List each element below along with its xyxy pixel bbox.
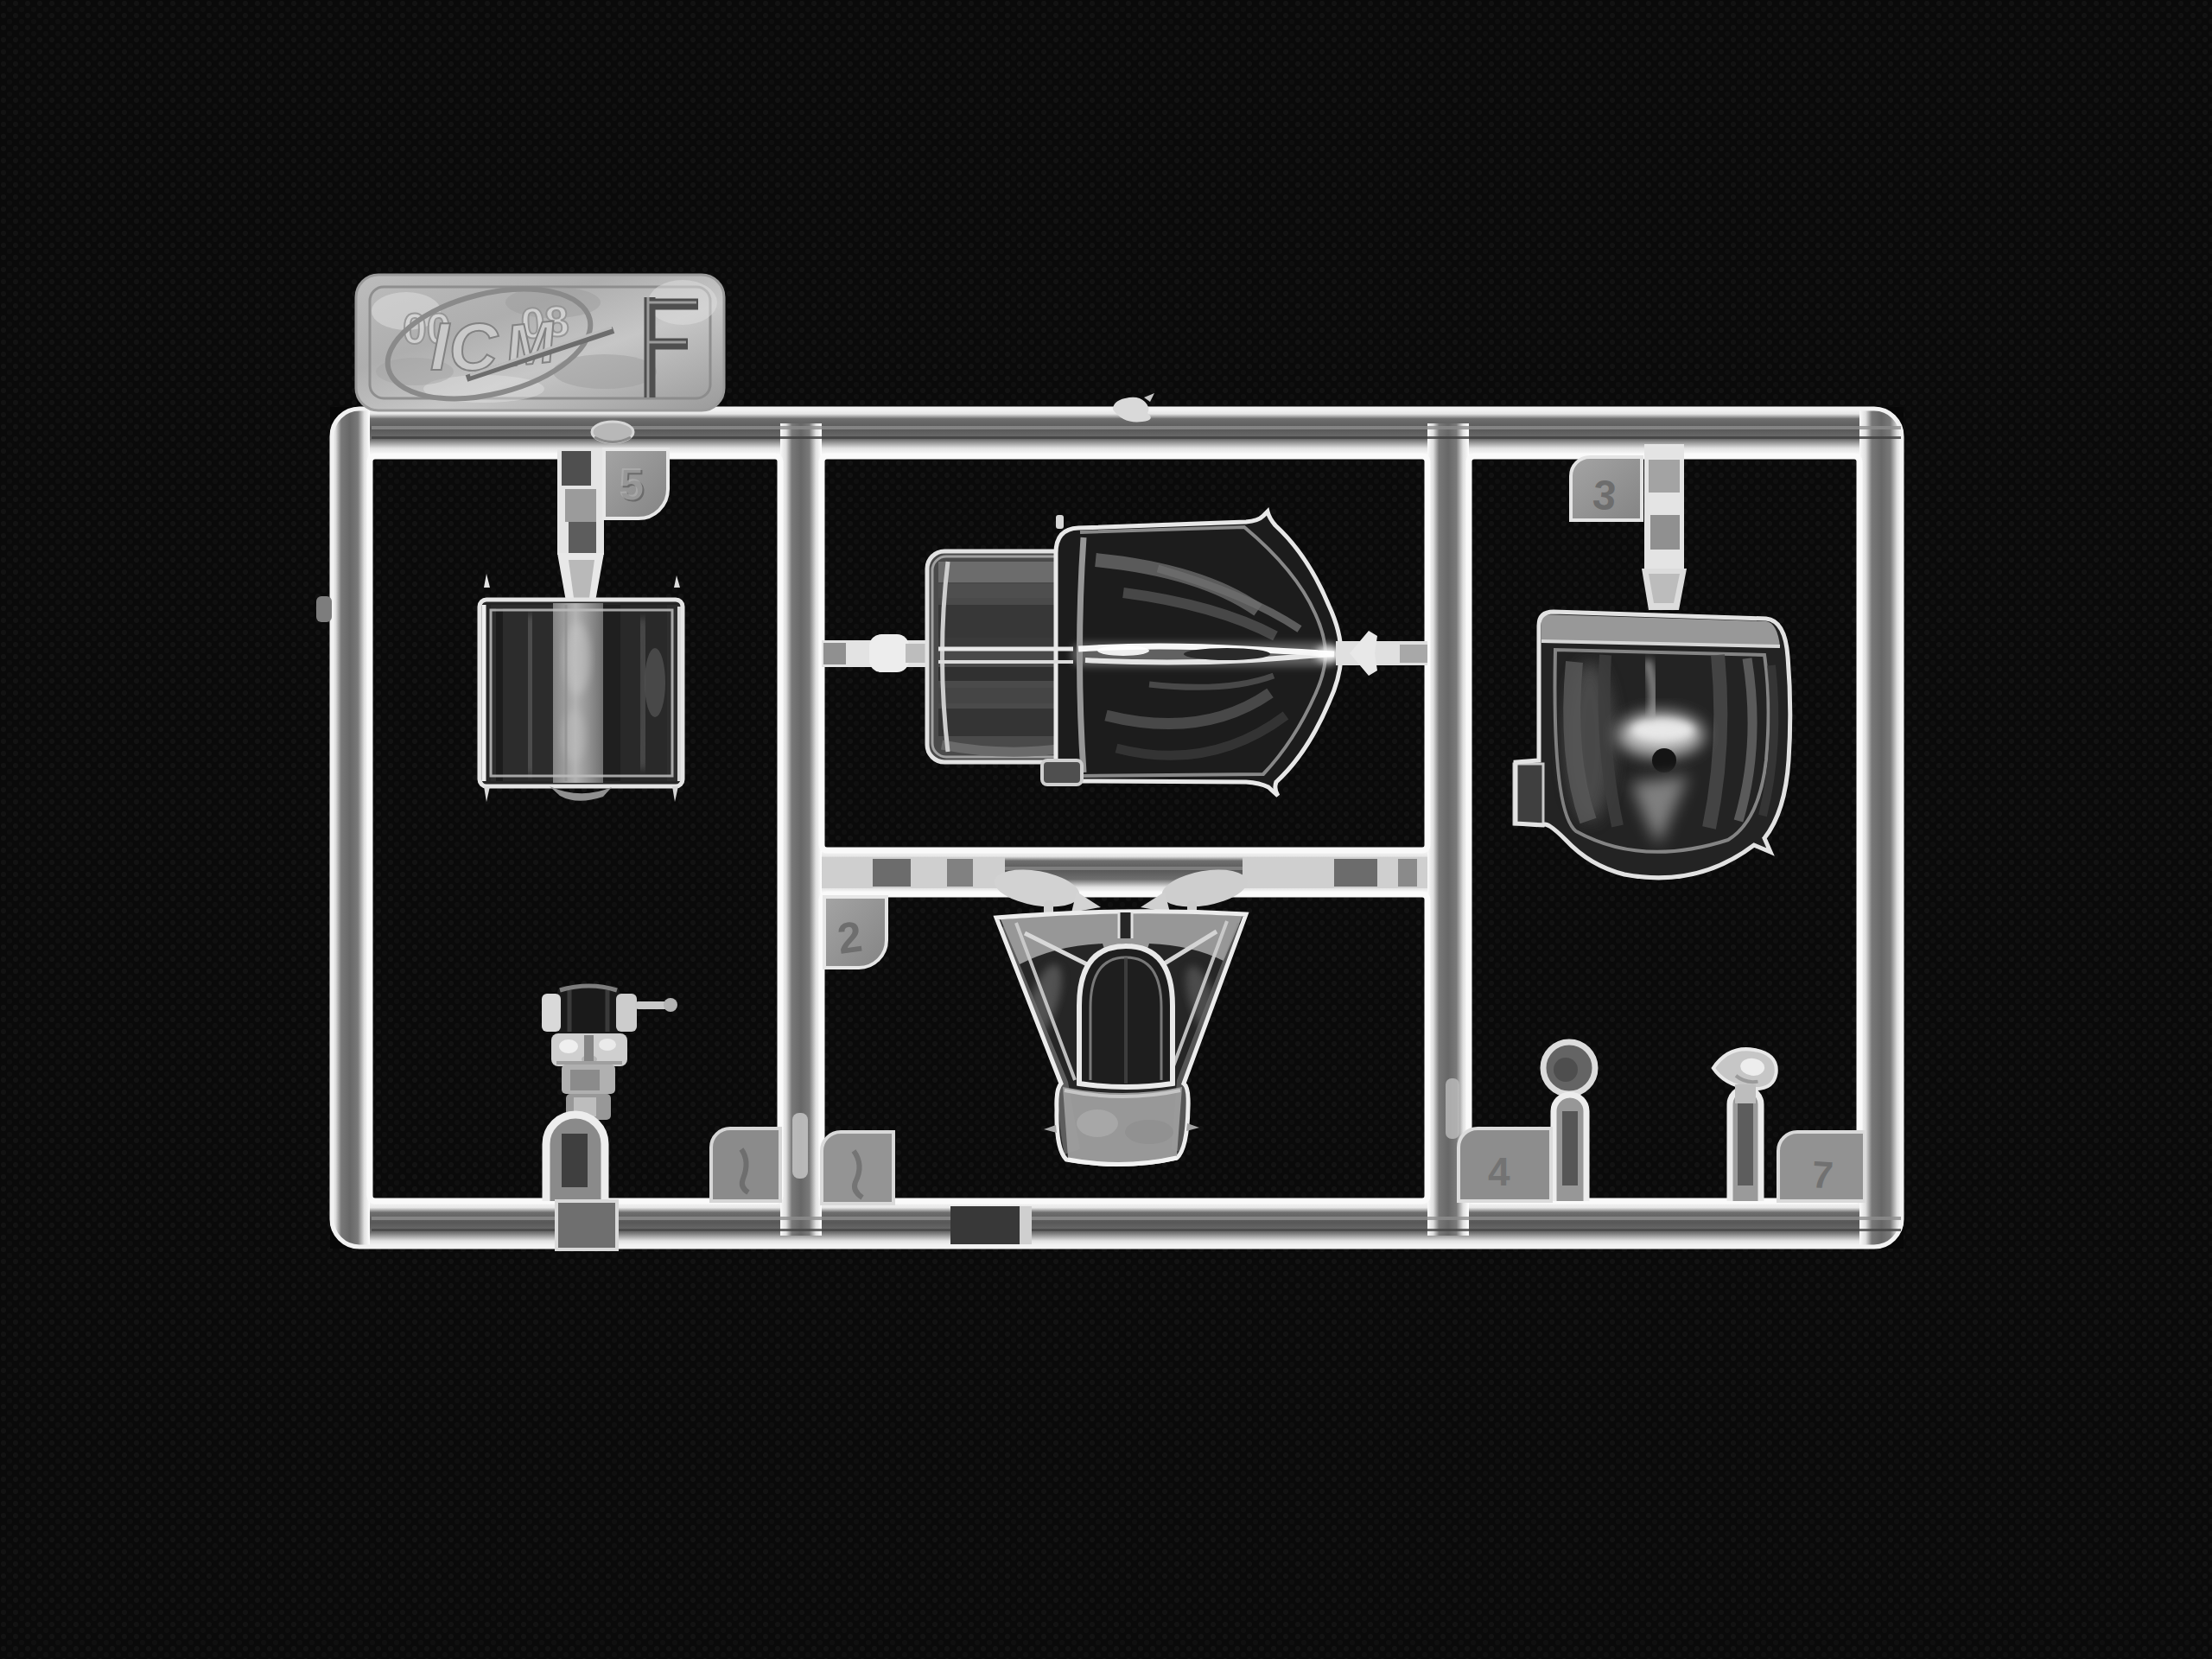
svg-text:3: 3 bbox=[1591, 471, 1618, 519]
svg-text:5: 5 bbox=[619, 459, 644, 509]
svg-text:M: M bbox=[503, 308, 560, 378]
svg-text:7: 7 bbox=[1810, 1153, 1834, 1197]
svg-text:4: 4 bbox=[1488, 1149, 1510, 1194]
